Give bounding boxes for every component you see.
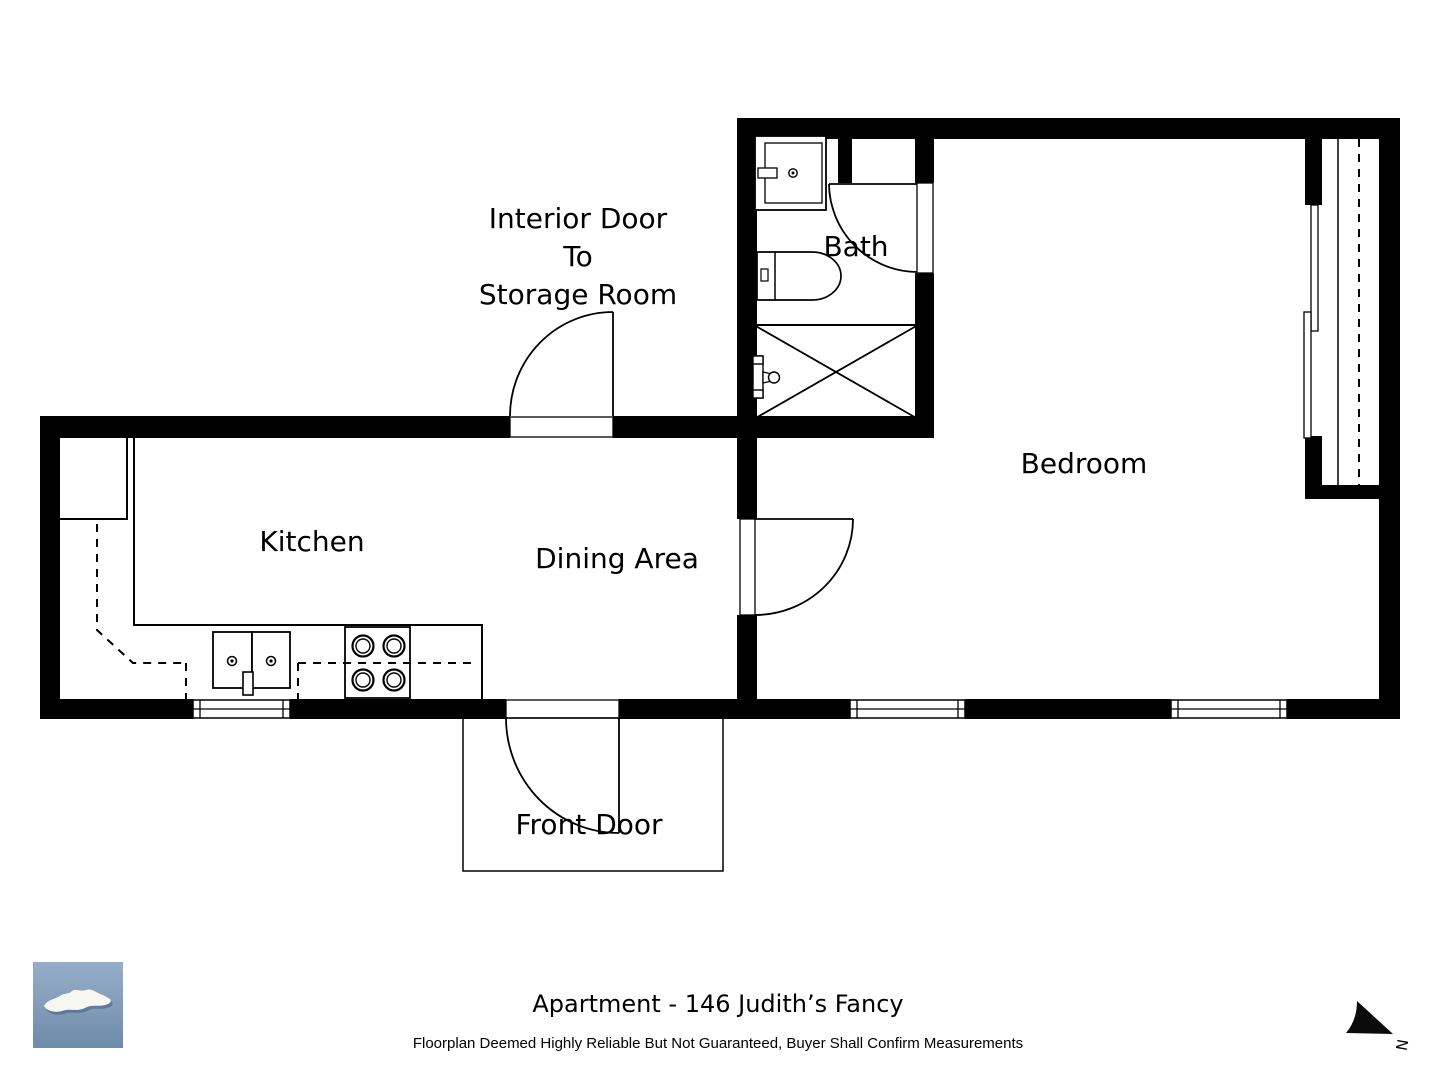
door-swing-arc: [755, 519, 853, 615]
burner-icon: [356, 639, 370, 653]
compass: N: [1346, 1001, 1411, 1052]
front-porch-outline: [463, 718, 723, 871]
interior-storage-door: [510, 312, 613, 437]
shower-valve-cap: [753, 390, 763, 398]
walls: [40, 118, 1400, 719]
vanity-faucet-icon: [758, 168, 777, 178]
sink-drain-icon: [269, 659, 272, 662]
burner-icon: [387, 639, 401, 653]
wall-segment: [1379, 118, 1400, 719]
door-threshold: [506, 700, 619, 718]
bedroom-window-right: [1171, 700, 1287, 718]
footer-title: Apartment - 146 Judith’s Fancy: [532, 990, 903, 1018]
wall-segment: [40, 416, 60, 719]
wall-segment: [40, 416, 510, 438]
sink-drain-icon: [230, 659, 233, 662]
interior-door-note-line1: Interior Door: [489, 202, 668, 235]
bath-vanity-sink: [755, 136, 826, 210]
kitchen-window: [193, 700, 290, 718]
toilet-flush-icon: [761, 269, 768, 281]
door-threshold: [917, 183, 933, 273]
room-label-kitchen: Kitchen: [259, 525, 364, 558]
shower-head-icon: [769, 372, 780, 383]
wall-segment: [737, 438, 757, 519]
island-logo: [33, 962, 123, 1048]
wall-segment: [619, 699, 850, 719]
wall-segment: [737, 118, 1399, 139]
sliding-panel: [1304, 312, 1311, 438]
floorplan-canvas: Kitchen Dining Area Bedroom Bath Interio…: [0, 0, 1440, 1080]
sink-faucet-icon: [243, 672, 253, 695]
footer-disclaimer: Floorplan Deemed Highly Reliable But Not…: [413, 1035, 1023, 1052]
wall-segment: [1287, 699, 1400, 719]
door-threshold: [510, 417, 613, 437]
room-label-dining: Dining Area: [535, 542, 699, 575]
closet-outline: [60, 438, 134, 520]
room-label-bath: Bath: [823, 230, 888, 263]
vanity-drain-icon: [792, 172, 795, 175]
shower-valve-cap: [753, 356, 763, 364]
shower-cross-lines: [754, 325, 918, 419]
door-swing-arc: [510, 312, 613, 416]
north-label: N: [1392, 1038, 1412, 1052]
burner-icon: [387, 673, 401, 687]
wall-segment: [1305, 139, 1322, 205]
wall-segment: [290, 699, 506, 719]
bedroom-door: [740, 519, 853, 615]
front-door: [463, 700, 723, 871]
wall-segment: [965, 699, 1171, 719]
wall-segment: [1305, 485, 1400, 499]
wall-segment: [915, 139, 934, 183]
wall-segment: [838, 139, 852, 183]
floorplan-page: Kitchen Dining Area Bedroom Bath Interio…: [0, 0, 1440, 1080]
front-door-label: Front Door: [515, 808, 663, 841]
wall-segment: [737, 615, 757, 700]
shower: [753, 325, 918, 419]
kitchen-sink: [213, 632, 290, 695]
interior-door-note-line2: To: [562, 240, 592, 273]
burner-icon: [356, 673, 370, 687]
door-threshold: [740, 519, 755, 615]
interior-door-note-line3: Storage Room: [479, 278, 677, 311]
bedroom-window-left: [850, 700, 965, 718]
wall-segment: [40, 699, 193, 719]
sliding-panel: [1311, 205, 1318, 331]
room-label-bedroom: Bedroom: [1021, 447, 1148, 480]
north-arrow-icon: [1346, 1001, 1393, 1034]
